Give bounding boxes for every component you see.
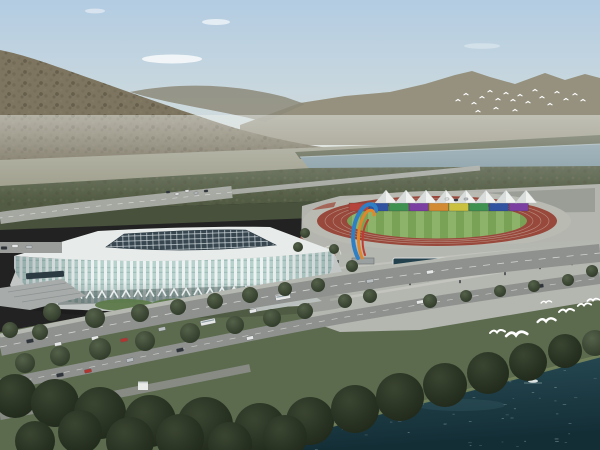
tree <box>170 299 186 315</box>
tree <box>363 289 377 303</box>
sparkle <box>555 439 559 440</box>
person <box>504 272 505 275</box>
tree <box>242 287 258 303</box>
sparkle <box>504 404 507 405</box>
vehicle-body <box>204 190 208 193</box>
tree <box>89 338 111 360</box>
tree <box>85 308 105 328</box>
tree <box>278 282 292 296</box>
vehicle-body <box>12 245 18 248</box>
sparkle <box>516 446 519 447</box>
sparkle <box>524 441 526 442</box>
car <box>1 247 7 250</box>
vehicle-body <box>175 193 179 196</box>
sparkle <box>513 398 515 399</box>
distance-haze <box>0 115 600 200</box>
tree <box>331 385 379 433</box>
vehicle-body <box>464 198 468 200</box>
sparkle <box>564 370 566 371</box>
sparkle <box>568 423 571 424</box>
vehicle-body <box>26 246 32 249</box>
scene-svg <box>0 0 600 450</box>
tree <box>423 363 467 407</box>
tree <box>131 304 149 322</box>
sparkle <box>565 442 567 443</box>
car <box>26 246 32 249</box>
sparkle <box>511 418 514 419</box>
sparkle <box>555 441 559 442</box>
tree <box>329 244 339 254</box>
cloud <box>202 19 230 25</box>
sparkle <box>506 414 509 415</box>
tree <box>2 322 18 338</box>
park-kiosk <box>138 382 148 391</box>
tree <box>293 242 303 252</box>
car <box>204 190 208 193</box>
car <box>166 191 170 194</box>
tree <box>311 278 325 292</box>
tree <box>548 334 582 368</box>
tree <box>15 353 35 373</box>
sparkle <box>390 422 392 423</box>
sparkle <box>574 397 577 398</box>
sparkle <box>514 408 516 409</box>
tree <box>562 274 574 286</box>
tree <box>528 280 540 292</box>
person <box>459 280 460 283</box>
grandstand-section <box>429 203 448 211</box>
tree <box>338 294 352 308</box>
sparkle <box>468 442 472 443</box>
tree <box>494 285 506 297</box>
sparkle <box>502 442 504 443</box>
vehicle-body <box>194 192 198 195</box>
grandstand-section <box>509 203 528 211</box>
car <box>12 245 18 248</box>
tree <box>226 316 244 334</box>
grandstand-section <box>469 203 488 211</box>
sparkle <box>470 445 472 446</box>
tree <box>50 346 70 366</box>
vehicle-body <box>1 247 7 250</box>
cloud <box>85 9 105 14</box>
sparkle <box>568 433 570 434</box>
sparkle <box>532 392 534 393</box>
vehicle-body <box>185 190 189 193</box>
sparkle <box>554 387 556 388</box>
tree <box>376 373 424 421</box>
kiosk-body <box>138 383 148 390</box>
kiosk-roof <box>138 382 148 384</box>
car <box>454 199 458 201</box>
sparkle <box>554 401 556 402</box>
tree <box>586 265 598 277</box>
sparkle <box>539 398 541 399</box>
tree <box>43 303 61 321</box>
car <box>175 193 179 196</box>
sparkle <box>452 414 454 415</box>
grandstand-section <box>409 203 428 211</box>
sparkle <box>473 397 476 398</box>
sparkle <box>444 424 447 425</box>
tree <box>32 324 48 340</box>
vehicle-body <box>454 199 458 201</box>
rendered-aerial-scene <box>0 0 600 450</box>
tree <box>509 343 547 381</box>
cloud <box>142 55 202 64</box>
sparkle <box>502 418 504 419</box>
grandstand-section <box>489 203 508 211</box>
sparkle <box>479 445 482 446</box>
tree <box>135 331 155 351</box>
vehicle-body <box>445 198 449 200</box>
tree <box>346 260 358 272</box>
tree <box>460 290 472 302</box>
grandstand-section <box>389 203 408 211</box>
sparkle <box>365 435 368 436</box>
car <box>464 198 468 200</box>
tree <box>300 228 310 238</box>
tree <box>180 323 200 343</box>
sparkle <box>563 404 566 405</box>
cloud <box>464 43 500 49</box>
car <box>194 192 198 195</box>
sparkle <box>408 432 410 433</box>
tree <box>263 309 281 327</box>
car <box>185 190 189 193</box>
grandstand-section <box>449 203 468 211</box>
tree <box>467 352 509 394</box>
sparkle <box>594 378 597 379</box>
tree <box>423 294 437 308</box>
tree <box>297 303 313 319</box>
sparkle <box>556 414 558 415</box>
sparkle <box>469 421 472 422</box>
tree <box>207 293 223 309</box>
sparkle <box>509 381 511 382</box>
vehicle-body <box>166 191 170 194</box>
car <box>445 198 449 200</box>
